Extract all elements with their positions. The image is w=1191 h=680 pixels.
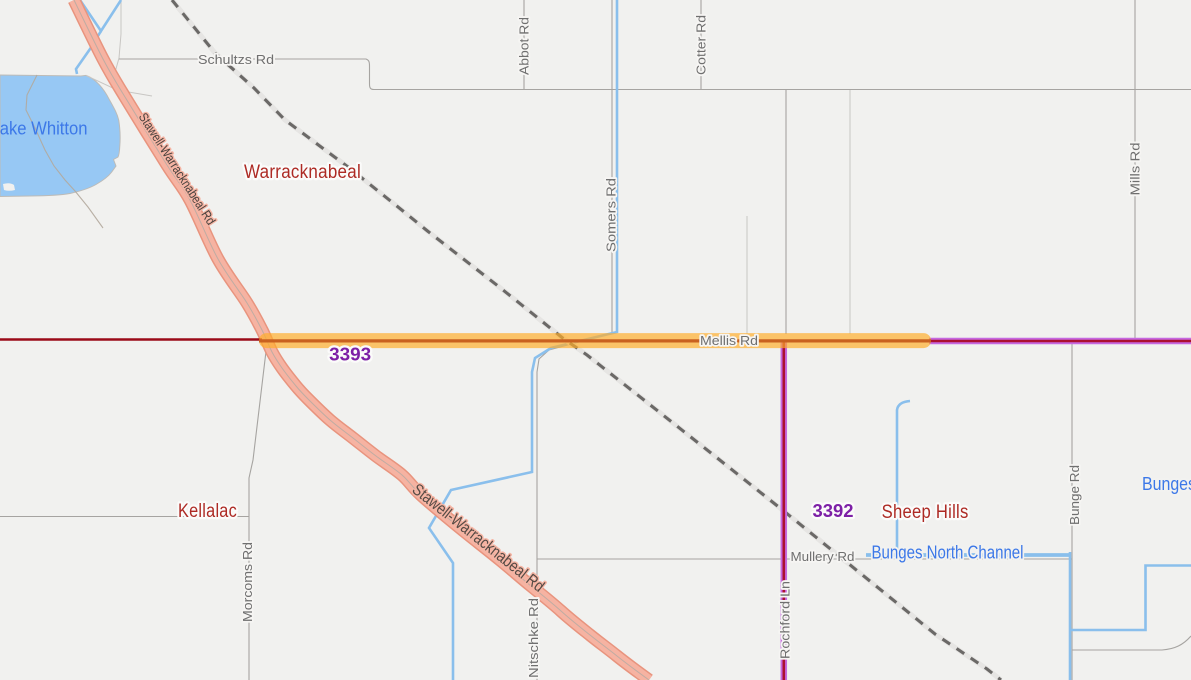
svg-text:Mills Rd: Mills Rd	[1128, 143, 1143, 196]
svg-text:Abbot Rd: Abbot Rd	[517, 17, 532, 75]
svg-text:Bunge Rd: Bunge Rd	[1067, 465, 1082, 525]
svg-text:Nitschke Rd: Nitschke Rd	[526, 598, 541, 678]
svg-text:Mellis Rd: Mellis Rd	[700, 333, 758, 348]
svg-text:3393: 3393	[329, 343, 371, 364]
svg-text:Warracknabeal: Warracknabeal	[244, 162, 361, 183]
svg-text:Kellalac: Kellalac	[178, 501, 237, 522]
svg-text:Rochford Ln: Rochford Ln	[778, 581, 793, 659]
svg-text:Schultzs Rd: Schultzs Rd	[198, 52, 274, 67]
svg-text:Bunges North Channel: Bunges North Channel	[872, 543, 1024, 563]
svg-text:Bunges: Bunges	[1142, 474, 1191, 494]
svg-text:3392: 3392	[813, 500, 854, 521]
svg-text:Mullery Rd: Mullery Rd	[791, 549, 855, 564]
svg-text:Somers Rd: Somers Rd	[604, 178, 619, 252]
svg-text:Sheep Hills: Sheep Hills	[882, 502, 969, 523]
svg-text:Morcoms Rd: Morcoms Rd	[240, 542, 255, 622]
svg-text:Cotter Rd: Cotter Rd	[694, 15, 709, 75]
svg-text:Lake Whitton: Lake Whitton	[0, 119, 88, 139]
